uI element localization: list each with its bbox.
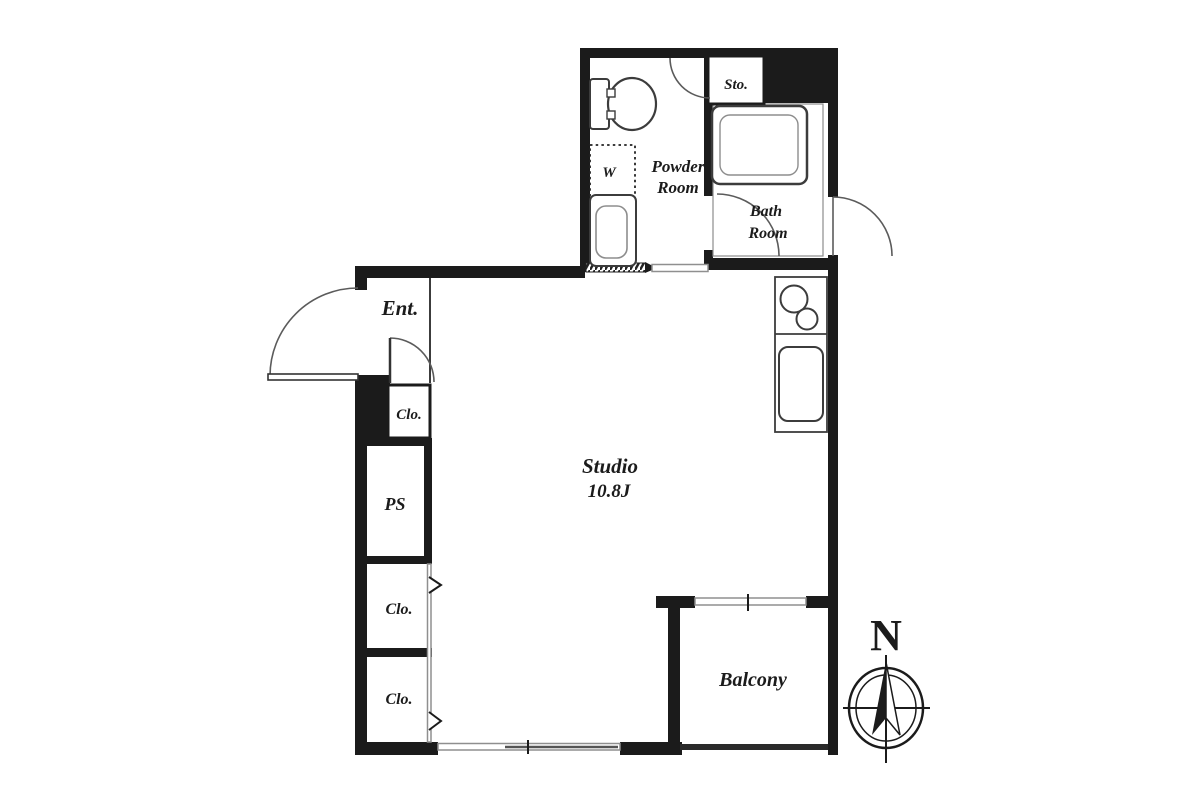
wall-balcony-left	[668, 596, 680, 750]
room-label-balcony: Balcony	[718, 669, 787, 691]
entrance-door-leaf	[268, 374, 358, 380]
service-door-arc	[833, 197, 892, 256]
wall-block-top-right	[760, 48, 830, 103]
compass-icon: N	[843, 611, 930, 763]
closet-lower-fold-chevron	[429, 712, 441, 730]
toilet-tank	[590, 79, 609, 129]
wall-main-top	[358, 266, 585, 278]
room-label-washer: W	[602, 165, 617, 181]
powder-room-sliding-door	[652, 265, 708, 272]
floor-plan-drawing: Ent. Clo. PS Clo. Clo. Studio 10.8J Powd…	[0, 0, 1200, 800]
room-label-powder-line1: Powder	[651, 157, 705, 176]
wall-bottom-left	[355, 742, 438, 755]
floor-plan-canvas: Ent. Clo. PS Clo. Clo. Studio 10.8J Powd…	[0, 0, 1200, 800]
balcony-sliding-window	[695, 598, 806, 605]
room-label-studio-size: 10.8J	[588, 481, 631, 502]
toilet-hinge-bottom	[607, 111, 615, 119]
wall-balcony-top-right	[806, 596, 828, 608]
closet-mid-fold-chevron	[429, 577, 441, 593]
compass-needle-dark	[872, 662, 886, 735]
wall-block-entrance-closet	[355, 375, 390, 442]
entrance-door-arc	[270, 288, 358, 376]
wall-right-main	[828, 255, 838, 755]
wall-closet-mid-bottom	[358, 648, 432, 657]
room-label-closet-middle: Clo.	[385, 601, 412, 618]
kitchen-sink	[779, 347, 823, 421]
wall-left-stub-above-entrance	[355, 266, 367, 290]
entrance-closet-door-arc	[390, 338, 434, 382]
toilet-icon	[590, 78, 656, 130]
wall-bath-bottom	[704, 258, 838, 270]
toilet-hinge-top	[607, 89, 615, 97]
wall-top-unit-left	[580, 48, 590, 272]
closet-doors	[428, 564, 442, 742]
room-label-entrance: Ent.	[381, 296, 419, 320]
room-label-bath-line1: Bath	[749, 203, 782, 220]
wall-ps-right	[424, 438, 432, 564]
room-label-storage: Sto.	[724, 77, 748, 93]
room-label-closet-lower: Clo.	[385, 691, 412, 708]
room-label-studio: Studio	[582, 454, 638, 478]
compass-north-label: N	[870, 611, 902, 660]
wall-ps-bottom	[358, 556, 432, 564]
room-label-powder-line2: Room	[656, 178, 699, 197]
toilet-bowl	[608, 78, 656, 130]
bathtub-outer	[712, 106, 807, 184]
room-label-entrance-closet: Clo.	[396, 407, 421, 423]
balcony-bottom-edge	[680, 744, 828, 750]
kitchen-unit	[775, 277, 827, 432]
compass-needle-light	[886, 662, 900, 735]
stove-burner-small	[797, 309, 818, 330]
vanity-sink-icon	[590, 195, 636, 266]
room-label-pipe-space: PS	[383, 494, 405, 514]
room-label-bath-line2: Room	[747, 225, 787, 242]
bathtub-icon	[712, 106, 807, 184]
